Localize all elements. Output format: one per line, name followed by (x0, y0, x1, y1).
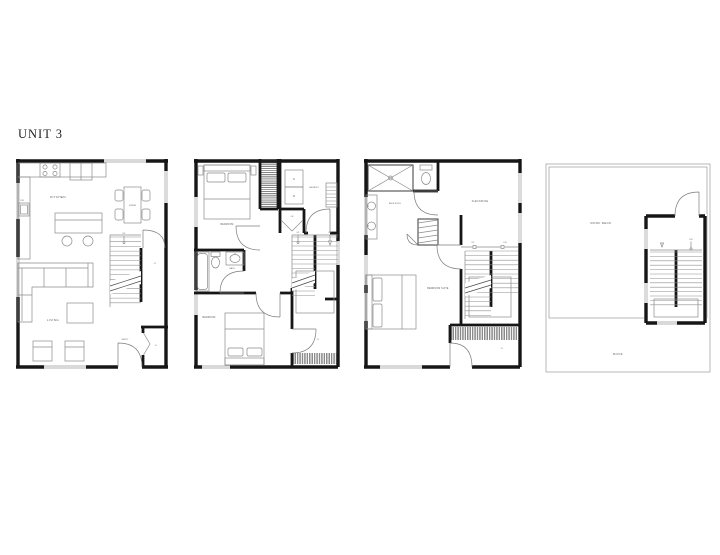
stairs: UP DN (461, 242, 518, 319)
dining-area: DINING (115, 187, 150, 223)
linen-closet: LN (281, 216, 303, 231)
laundry-label: LAUNDRY (309, 186, 319, 189)
entry-closet: CL (144, 333, 158, 355)
vanity-sink (226, 252, 244, 265)
sofa (18, 263, 93, 322)
counter (18, 177, 30, 259)
stool (83, 236, 93, 246)
kitchen-area: DW KITCHEN (18, 163, 106, 259)
bedroom-front: BEDROOM (198, 165, 260, 250)
bath-label: BATH (229, 267, 235, 270)
closet-label: CL (154, 263, 157, 265)
exterior-walls (194, 159, 339, 368)
bath-door (220, 271, 244, 293)
floor-plan-second: BEDROOM D W LAUNDRY LN (192, 157, 340, 369)
bed (204, 165, 250, 219)
toilet (211, 252, 220, 268)
up-label: UP (297, 232, 300, 234)
bedroom-door (236, 226, 260, 250)
stairs-up: UP (110, 233, 141, 307)
living-area: LIVING (18, 263, 93, 361)
exterior-walls (364, 159, 521, 368)
dining-label: DINING (129, 205, 137, 207)
bedroom-label: BEDROOM (203, 317, 216, 319)
walk-in-closet: CL (450, 327, 517, 367)
front-door (118, 343, 142, 367)
kitchen-label: KITCHEN (50, 195, 66, 199)
shelving (326, 183, 337, 207)
stool (62, 236, 72, 246)
kitchen-sink (19, 203, 29, 216)
entry-area: ENTRY CL (118, 333, 157, 367)
bathtub (196, 252, 209, 291)
linen-closet (407, 219, 438, 245)
floor-plan-sheet: UNIT 3 (0, 0, 720, 555)
bedroom-label: BEDROOM (221, 224, 234, 226)
bath-suite-label: BATH SUITE (389, 202, 402, 205)
closet-label: CL (155, 345, 158, 347)
floor-plan-main: DW KITCHEN DINING UP (14, 157, 170, 369)
closet-hatch (261, 161, 277, 207)
nightstand (251, 166, 256, 175)
up-label: UP (472, 242, 475, 244)
coffee-table (67, 303, 93, 323)
double-vanity (366, 195, 377, 239)
linen-label: LN (291, 216, 294, 218)
roof-label: ROOF (613, 352, 623, 356)
nightstand (198, 166, 203, 175)
bed (366, 275, 416, 329)
closet-label: CL (501, 348, 504, 350)
bedroom-door (256, 293, 280, 317)
roof-access-door (675, 192, 699, 216)
kitchen-island (55, 213, 102, 246)
bedroom-rear: BEDROOM (203, 293, 280, 365)
flex-office-label: FLEX/OFFICE (472, 201, 489, 203)
bath-door (414, 191, 438, 215)
accent-chairs (33, 341, 84, 361)
shower (368, 165, 413, 191)
bedroom-suite-label: BEDROOM SUITE (427, 288, 449, 290)
range (40, 163, 60, 177)
closet-label: CL (317, 339, 320, 341)
entry-label: ENTRY (122, 339, 130, 341)
floor-plan-third: BATH SUITE FLEX/OFFICE UP DN (362, 157, 522, 369)
dn-label: DN (504, 242, 507, 244)
washer-label: W (293, 196, 296, 198)
bath-suite: BATH SUITE (366, 165, 438, 239)
refrigerator (70, 163, 92, 180)
living-label: LIVING (47, 318, 59, 322)
bedroom-suite: BEDROOM SUITE (366, 275, 449, 329)
windows (195, 197, 339, 368)
floor-plan-roof: ROOF DECK ROOF DN (545, 155, 717, 380)
stair-closet: CL (143, 230, 165, 265)
laundry-door (306, 209, 330, 233)
dryer-label: D (293, 179, 295, 181)
bathroom: BATH (196, 252, 244, 293)
toilet (420, 165, 432, 185)
dishwasher-label: DW (21, 200, 24, 202)
roof-deck-label: ROOF DECK (590, 221, 612, 225)
flex-office: FLEX/OFFICE (437, 201, 489, 269)
rear-closet: CL (292, 329, 337, 364)
bedroom-door (437, 245, 461, 269)
unit-title: UNIT 3 (18, 127, 63, 142)
bed (225, 313, 264, 365)
